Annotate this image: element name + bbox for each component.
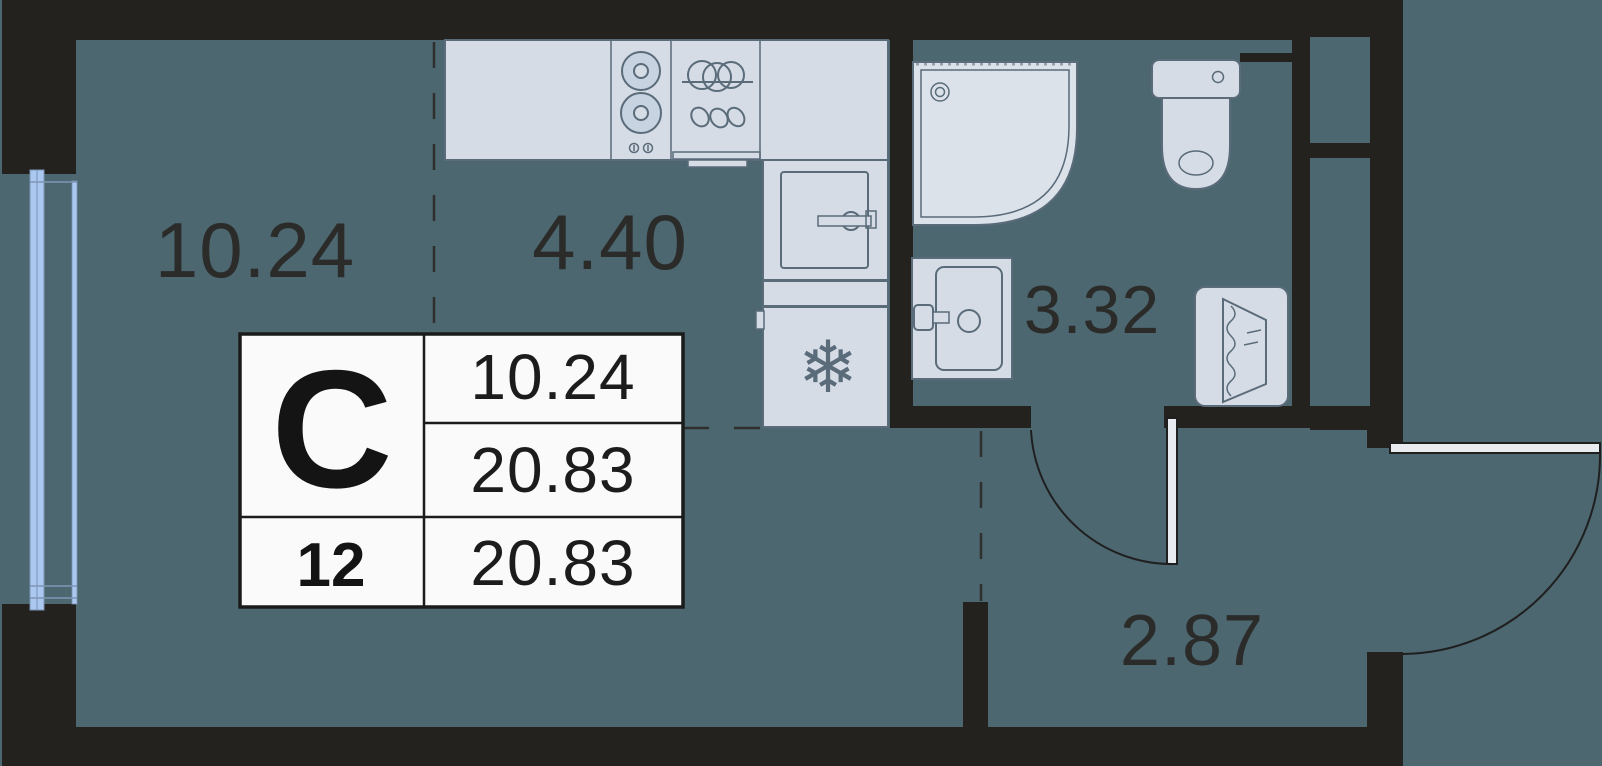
toilet-icon (1152, 60, 1240, 189)
living-area-cell: 10.24 (470, 341, 635, 413)
floor-plan: ❄ (0, 0, 1602, 766)
washbasin-icon (912, 258, 1012, 379)
oven-icon (763, 160, 888, 280)
total-area-cell: 20.83 (470, 434, 635, 506)
floor-plan-canvas: ❄ (0, 0, 1602, 766)
duct-shaft-upper (1310, 37, 1370, 143)
kitchen-counter (445, 40, 888, 160)
door-leaf (1390, 443, 1600, 453)
kitchen-area-label: 4.40 (532, 198, 688, 286)
shower-tray-icon (913, 62, 1077, 225)
kitchen-cabinet (763, 281, 888, 306)
fridge-snowflake-icon: ❄ (756, 307, 888, 427)
bathroom-area-label: 3.32 (1024, 272, 1160, 348)
total-area-bottom-cell: 20.83 (470, 527, 635, 599)
washing-machine-icon (1195, 287, 1288, 406)
unit-type-cell: С (271, 335, 392, 523)
floor-number-cell: 12 (297, 531, 366, 600)
living-room-area-label: 10.24 (155, 206, 355, 294)
duct-shaft-lower (1310, 158, 1370, 406)
hallway-area-label: 2.87 (1120, 601, 1264, 681)
door-leaf (1167, 418, 1177, 564)
svg-text:❄: ❄ (798, 325, 858, 409)
unit-info-table: С 10.24 20.83 12 20.83 (240, 334, 683, 607)
